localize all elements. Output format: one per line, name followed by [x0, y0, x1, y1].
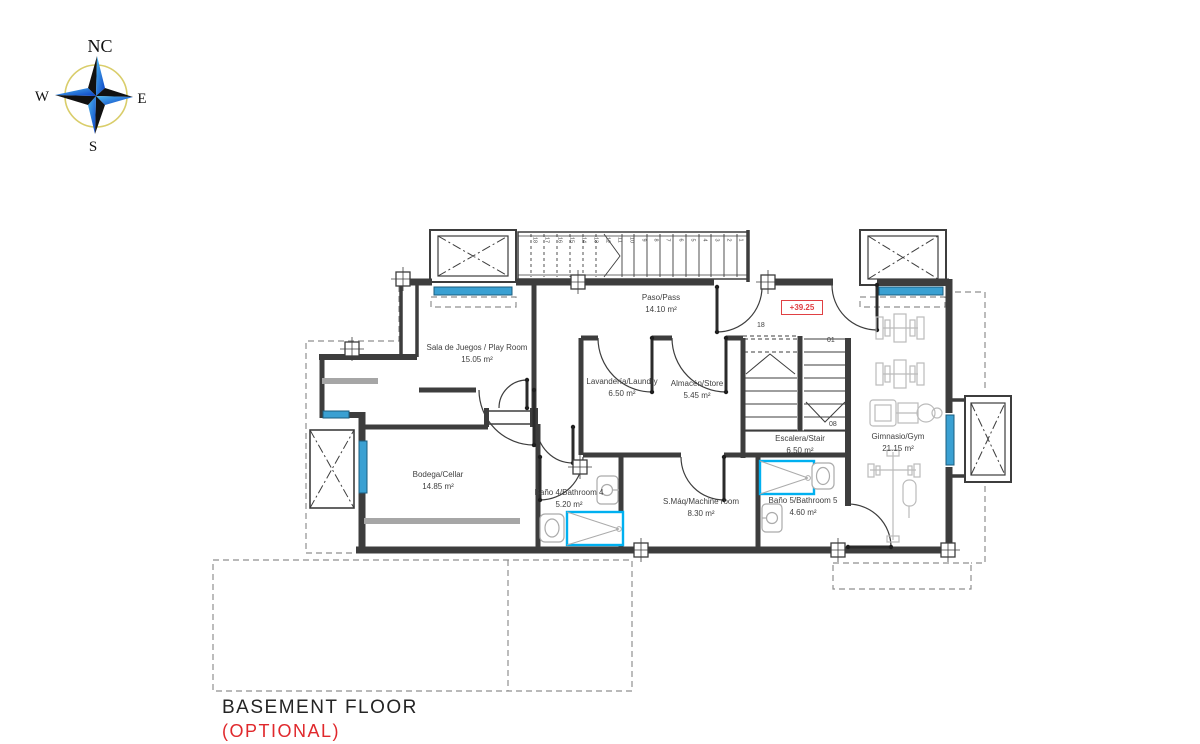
exterior-stair-tread-16: 16: [556, 236, 562, 245]
exterior-stair-tread-11: 11: [617, 236, 623, 245]
plan-subtitle: (OPTIONAL): [222, 721, 418, 742]
room-name: Lavandería/Laundry: [586, 376, 657, 388]
exterior-stair-tread-18: 18: [532, 236, 538, 245]
room-label-store: Almacén/Store 5.45 m²: [671, 378, 723, 401]
room-name: Baño 4/Bathroom 4: [535, 487, 604, 499]
exterior-stair-tread-8: 8: [653, 236, 659, 245]
room-area: 6.50 m²: [775, 445, 825, 457]
exterior-stair-tread-6: 6: [677, 236, 683, 245]
window-top-right: [879, 287, 943, 295]
exterior-stair-tread-4: 4: [701, 236, 707, 245]
plan-title: BASEMENT FLOOR: [222, 697, 418, 719]
room-label-machine-room: S.Máq/Machine room 8.30 m²: [663, 496, 739, 519]
exterior-stair-tread-13: 13: [592, 236, 598, 245]
room-area: 8.30 m²: [663, 508, 739, 520]
window-annex: [323, 411, 349, 418]
title-block: BASEMENT FLOOR (OPTIONAL): [222, 697, 418, 742]
exterior-walls: [356, 279, 949, 553]
room-label-laundry: Lavandería/Laundry 6.50 m²: [586, 376, 657, 399]
stair-step-first: 01: [827, 337, 835, 344]
room-label-bathroom4: Baño 4/Bathroom 4 5.20 m²: [535, 487, 604, 510]
room-name: S.Máq/Machine room: [663, 496, 739, 508]
exterior-stair-tread-10: 10: [629, 236, 635, 245]
shower-tray-bath4: [567, 512, 623, 545]
exterior-stair-tread-14: 14: [580, 236, 586, 245]
exterior-stair-tread-3: 3: [713, 236, 719, 245]
stair-step-top: 18: [757, 322, 765, 329]
room-area: 5.45 m²: [671, 390, 723, 402]
room-label-gym: Gimnasio/Gym 21.15 m²: [872, 431, 925, 454]
exterior-stair-tread-5: 5: [689, 236, 695, 245]
exterior-stair-tread-7: 7: [665, 236, 671, 245]
room-name: Baño 5/Bathroom 5: [769, 495, 838, 507]
gym-equipment: [868, 314, 942, 542]
room-name: Gimnasio/Gym: [872, 431, 925, 443]
room-label-stair: Escalera/Stair 6.50 m²: [775, 433, 825, 456]
exterior-stair-tread-2: 2: [725, 236, 731, 245]
room-label-cellar: Bodega/Cellar 14.85 m²: [413, 469, 464, 492]
exterior-stair-tread-1: 1: [738, 236, 744, 245]
room-name: Sala de Juegos / Play Room: [427, 342, 528, 354]
light-well-right: [965, 396, 1011, 482]
room-area: 5.20 m²: [535, 499, 604, 511]
room-label-pass: Paso/Pass 14.10 m²: [642, 292, 680, 315]
room-area: 4.60 m²: [769, 507, 838, 519]
room-name: Paso/Pass: [642, 292, 680, 304]
room-area: 21.15 m²: [872, 443, 925, 455]
room-area: 6.50 m²: [586, 388, 657, 400]
gym-machine-2: [876, 360, 924, 388]
terrace-projection-outline: [213, 560, 632, 691]
floor-plan-drawing: [0, 0, 1200, 744]
right-projection-outline: [833, 563, 971, 589]
floor-plan-page: NC W E S: [0, 0, 1200, 744]
interior-stair: [743, 336, 847, 431]
exterior-stair-tread-12: 12: [604, 236, 610, 245]
gray-retaining-walls: [322, 381, 520, 521]
room-area: 15.05 m²: [427, 354, 528, 366]
stair-step-mid: 08: [829, 421, 837, 428]
room-label-bathroom5: Baño 5/Bathroom 5 4.60 m²: [769, 495, 838, 518]
light-well-top-left: [430, 230, 516, 282]
exterior-stair-tread-17: 17: [544, 236, 550, 245]
toilet-bath4: [540, 514, 564, 542]
light-well-left: [310, 430, 354, 508]
toilet-bath5: [812, 463, 834, 489]
exterior-stair-tread-15: 15: [568, 236, 574, 245]
gym-machine-4: [868, 450, 920, 542]
anteroom-stub-wall: [484, 408, 538, 427]
room-name: Escalera/Stair: [775, 433, 825, 445]
window-top-left: [434, 287, 512, 295]
room-label-play-room: Sala de Juegos / Play Room 15.05 m²: [427, 342, 528, 365]
exterior-stair-tread-9: 9: [641, 236, 647, 245]
gym-machine-1: [876, 314, 924, 342]
room-name: Bodega/Cellar: [413, 469, 464, 481]
room-area: 14.85 m²: [413, 481, 464, 493]
room-area: 14.10 m²: [642, 304, 680, 316]
light-well-top-right: [860, 230, 946, 285]
gym-machine-3: [870, 400, 942, 426]
window-right: [946, 415, 954, 465]
room-name: Almacén/Store: [671, 378, 723, 390]
window-left: [359, 441, 367, 493]
level-marker: +39.25: [781, 300, 823, 315]
